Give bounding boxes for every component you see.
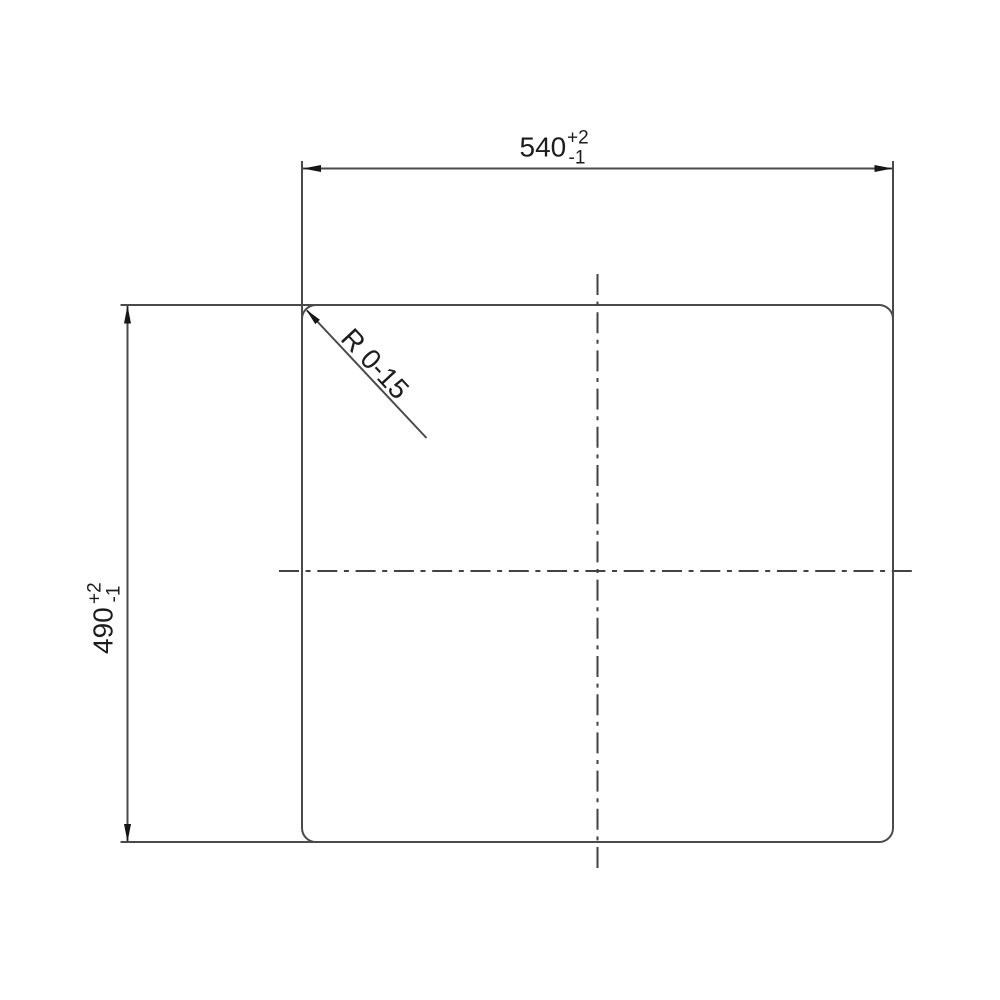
svg-text:+2: +2 [85, 582, 106, 604]
svg-text:-1: -1 [569, 148, 586, 169]
svg-text:490: 490 [88, 607, 119, 654]
svg-text:-1: -1 [104, 586, 125, 603]
svg-text:R 0-15: R 0-15 [335, 322, 415, 405]
svg-text:+2: +2 [567, 128, 589, 149]
svg-text:540: 540 [520, 132, 567, 163]
